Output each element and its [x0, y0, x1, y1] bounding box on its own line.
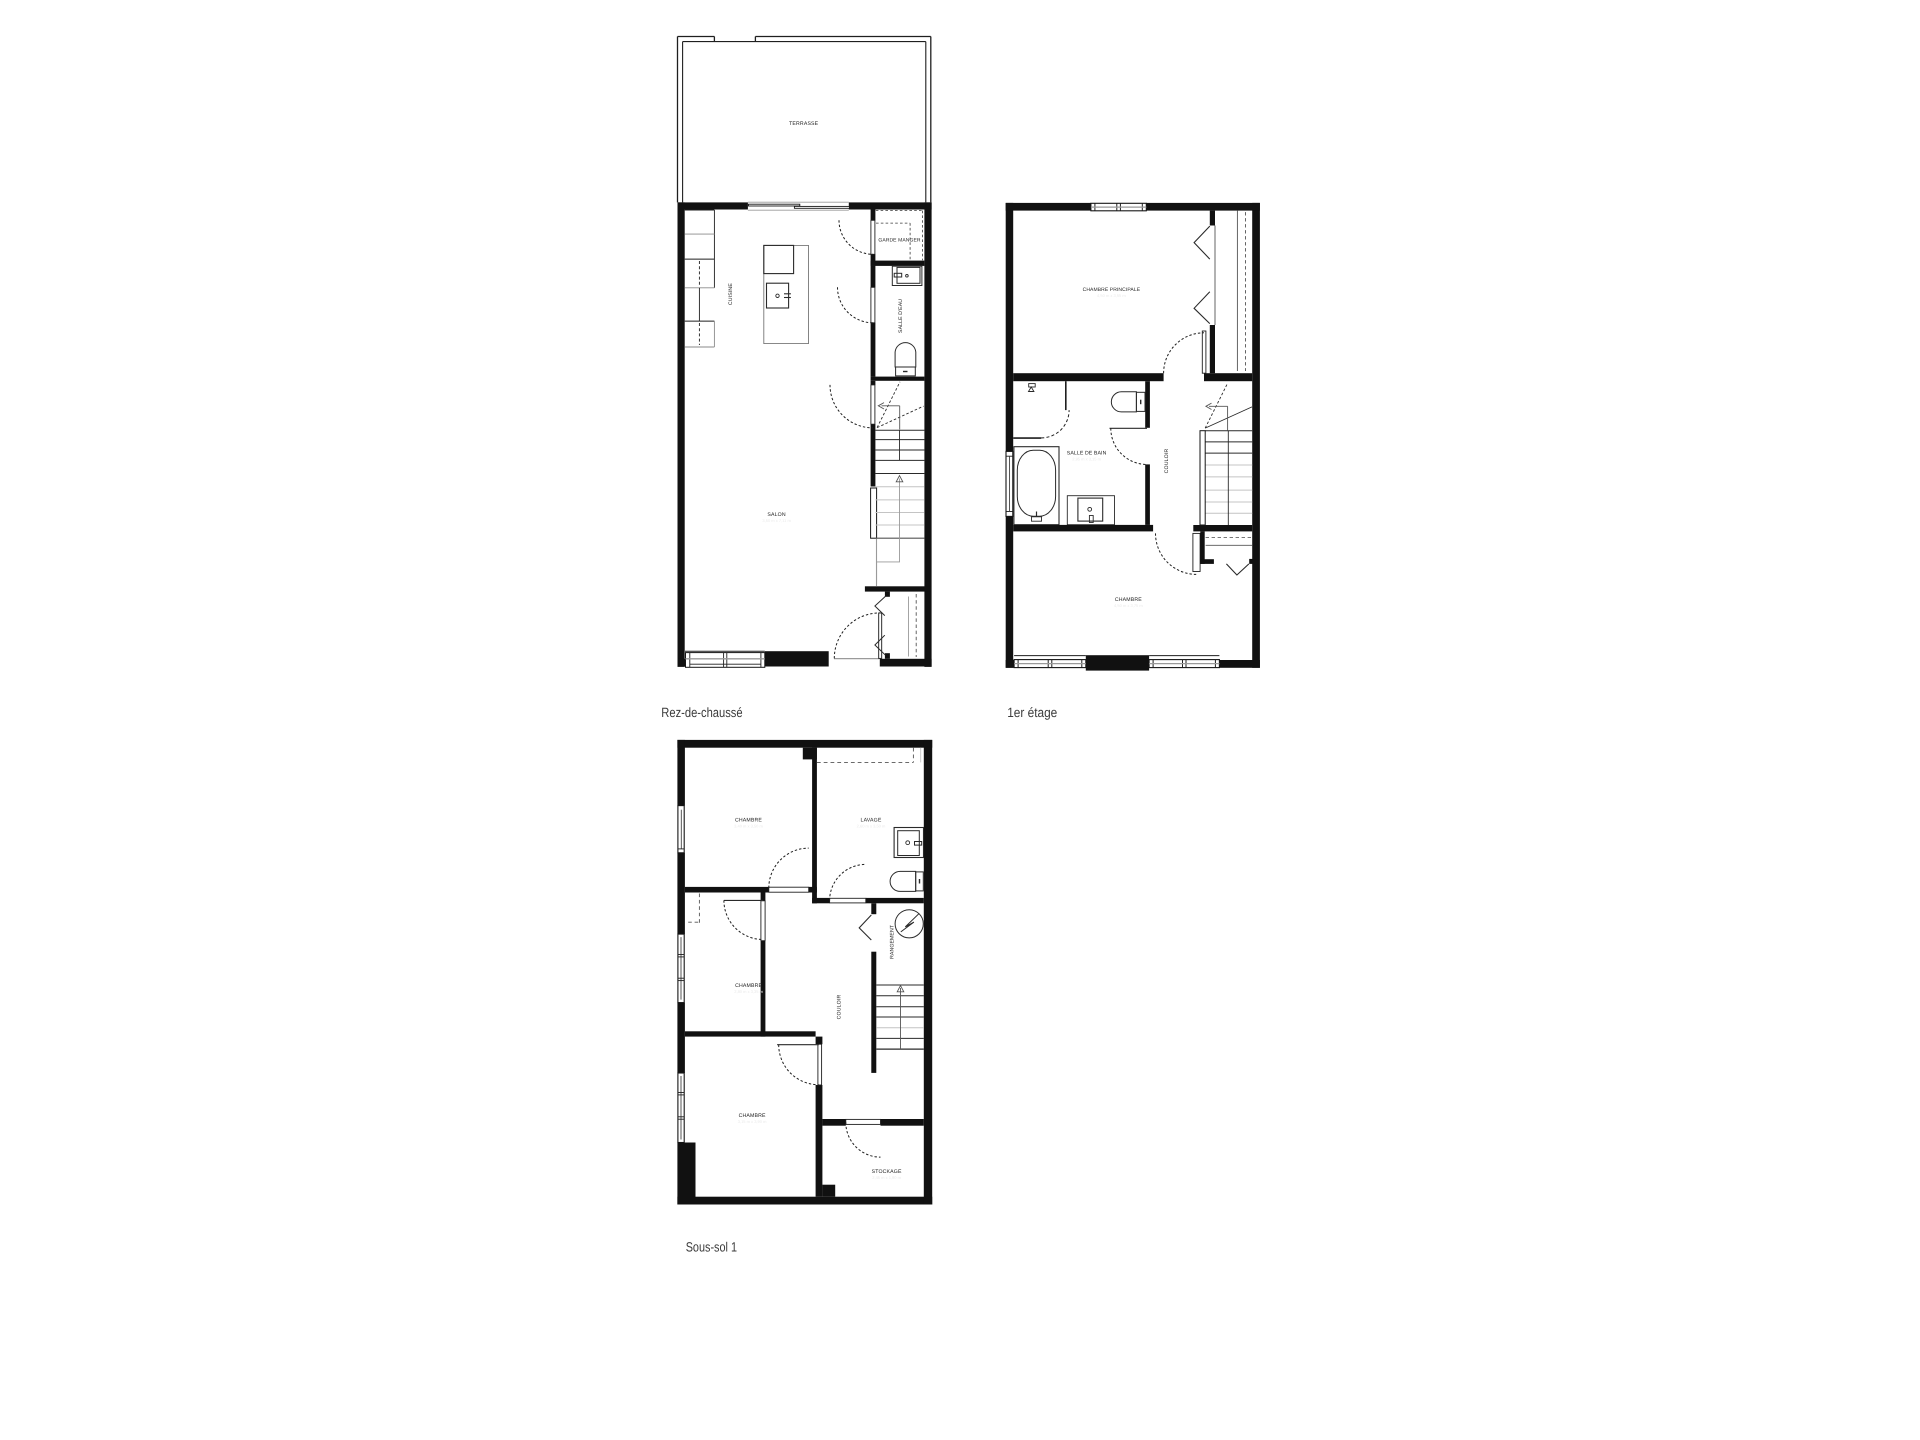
svg-text:Rez-de-chaussé: Rez-de-chaussé [661, 705, 742, 720]
svg-text:Sous-sol 1: Sous-sol 1 [686, 1240, 737, 1255]
svg-text:TERRASSE: TERRASSE [789, 121, 819, 127]
svg-text:CUISINE: CUISINE [728, 283, 734, 305]
svg-text:4,50 m x 3,55 m: 4,50 m x 3,55 m [1097, 293, 1126, 298]
svg-text:2,80 m x 3,35 m: 2,80 m x 3,35 m [734, 989, 763, 994]
svg-text:2,45 m x 1,90 m: 2,45 m x 1,90 m [872, 1175, 901, 1180]
svg-text:1er étage: 1er étage [1007, 705, 1057, 720]
svg-text:COULOIR: COULOIR [1164, 449, 1170, 474]
svg-text:COULOIR: COULOIR [837, 995, 843, 1020]
svg-text:2,95 m x 3,15 m: 2,95 m x 3,15 m [1072, 457, 1101, 462]
svg-text:GARDE MANGER: GARDE MANGER [878, 237, 921, 243]
svg-text:3,15 m x 3,90 m: 3,15 m x 3,90 m [738, 1119, 767, 1124]
svg-text:2,60 m x 3,50 m: 2,60 m x 3,50 m [857, 824, 886, 829]
svg-text:RANGEMENT: RANGEMENT [889, 924, 895, 959]
svg-text:SALLE D'EAU: SALLE D'EAU [898, 299, 904, 333]
svg-text:4,50 m x 3,75 m: 4,50 m x 3,75 m [1114, 603, 1143, 608]
svg-text:3,40 m x 3,50 m: 3,40 m x 3,50 m [734, 824, 763, 829]
svg-text:3,50 m x 7,11 m: 3,50 m x 7,11 m [762, 518, 791, 523]
